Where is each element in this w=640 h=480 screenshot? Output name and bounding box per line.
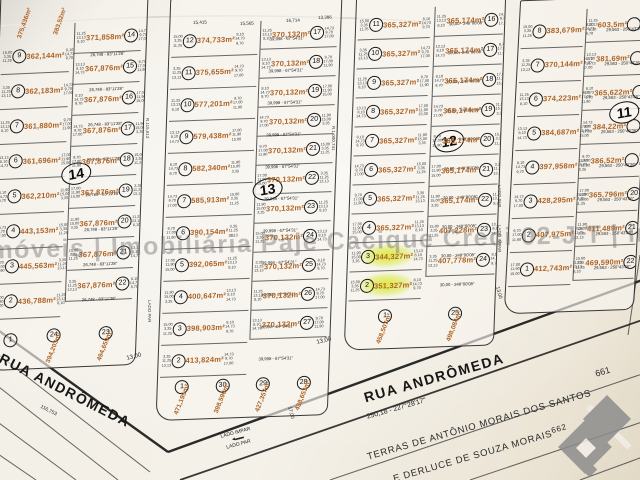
lot-column: 11,2513,138,10370,132m²1714,739,7017,003… bbox=[249, 18, 337, 340]
lot-number: 11 bbox=[369, 18, 384, 32]
lot-row: 13,138,1014,73370,132m²279,7017,0011,903… bbox=[250, 308, 327, 340]
edge-number: 8,10 bbox=[262, 37, 272, 42]
lot-number: 17 bbox=[483, 42, 498, 56]
edge-number: 8,10 bbox=[227, 265, 237, 270]
lot-row: 14,739,7017,00365,174m²1911,9015,003,353… bbox=[432, 94, 501, 126]
corridor-label-1: R.115,613 bbox=[145, 118, 150, 138]
edge-number: 13,13 bbox=[57, 266, 67, 271]
lot-number: 14 bbox=[124, 28, 139, 43]
lot-area: 365,796m² bbox=[589, 189, 628, 199]
lot-number: 17 bbox=[121, 121, 136, 136]
edge-numbers: 8,1014,739,70 bbox=[421, 17, 431, 30]
lot-number: 19 bbox=[308, 84, 323, 98]
edge-number: 3,35 bbox=[69, 226, 79, 231]
lot-area: 412,743m² bbox=[534, 263, 573, 273]
lot-area: 367,876m² bbox=[85, 62, 123, 73]
edge-number: 3,35 bbox=[417, 141, 427, 146]
edge-number: 9,70 bbox=[260, 95, 270, 100]
edge-numbers: 17,0011,9015,00 bbox=[231, 129, 241, 142]
lot-area: 365,174m² bbox=[443, 105, 481, 115]
bottom-lot: 1458,507m² bbox=[369, 308, 401, 332]
lot-number bbox=[626, 118, 640, 132]
lot-number: 16 bbox=[484, 12, 499, 26]
lot-number: 3 bbox=[172, 322, 187, 336]
top-dim-2: 15,565 bbox=[240, 21, 254, 26]
corridor-label-2: R.1.000,741 bbox=[331, 126, 336, 151]
edge-number: 3,35 bbox=[321, 121, 331, 126]
edge-numbers: 8,1014,739,70 bbox=[225, 321, 235, 334]
bottom-lot: 28438,653m² bbox=[287, 375, 319, 399]
lot-area: 367,876m² bbox=[77, 279, 115, 290]
lot-number: 10 bbox=[368, 47, 383, 61]
edge-numbers: 9,7017,0011,90 bbox=[62, 118, 72, 131]
edge-number: 3,35 bbox=[135, 130, 145, 135]
edge-number: 13,13 bbox=[319, 179, 329, 184]
lot-area: 370,132m² bbox=[268, 145, 306, 155]
block-bottom-lots: 1471,195m²30398,590m²29427,357m²28438,65… bbox=[161, 363, 325, 415]
lot-row: 17,0011,9015,001412,743m²11,2513,138,102… bbox=[508, 251, 572, 287]
lot-number: 8 bbox=[366, 105, 381, 119]
edge-numbers: 9,7017,0011,90 bbox=[71, 155, 81, 168]
edge-number: 14,73 bbox=[0, 164, 9, 169]
edge-number: 9,70 bbox=[235, 41, 245, 46]
block-14: 375,436m²383,52m²15,003,3511,259362,144m… bbox=[0, 0, 149, 371]
street-edge bbox=[0, 452, 36, 480]
lot-number: 5 bbox=[7, 189, 22, 204]
edge-number: 15,00 bbox=[510, 271, 520, 276]
lot-area: 362,183m² bbox=[25, 85, 63, 96]
edge-numbers: 8,1014,739,70 bbox=[260, 86, 270, 99]
lot-area: 351,327m² bbox=[374, 280, 412, 290]
edge-number: 3,35 bbox=[59, 196, 69, 201]
edge-numbers: 15,003,3511,25 bbox=[163, 323, 173, 336]
edge-number: 8,10 bbox=[76, 40, 86, 45]
edge-numbers: 9,7017,0011,90 bbox=[432, 135, 442, 148]
edge-number: 17,00 bbox=[315, 295, 325, 300]
bottom-lot: 25498,084m² bbox=[439, 306, 471, 330]
block-11: 15,003,3511,258383,679m²8,1014,739,7029,… bbox=[504, 0, 640, 314]
edge-number: 17,00 bbox=[498, 21, 506, 26]
edge-number: 17,00 bbox=[433, 113, 443, 118]
edge-number: 17,00 bbox=[63, 91, 73, 96]
edge-numbers: 11,2513,138,10 bbox=[253, 289, 263, 302]
edge-numbers: 13,138,1014,73 bbox=[261, 57, 271, 70]
lot-number: 10 bbox=[180, 98, 195, 112]
edge-numbers: 15,003,3511,25 bbox=[229, 193, 239, 206]
edge-number: 11,90 bbox=[314, 324, 324, 329]
lot-area: 367,876m² bbox=[82, 155, 120, 166]
lot-area: 577,201m² bbox=[194, 99, 232, 109]
lot-row: 13,138,1014,73367,876m²159,7017,0011,903… bbox=[73, 51, 140, 85]
edge-number: 13,13 bbox=[358, 56, 368, 61]
edge-number: 9,70 bbox=[434, 83, 444, 88]
edge-numbers: 8,1014,739,70 bbox=[168, 163, 178, 176]
edge-number: 14,73 bbox=[356, 114, 366, 119]
lot-number: 20 bbox=[480, 132, 495, 146]
edge-number: 14,73 bbox=[413, 257, 423, 262]
edge-numbers: 8,1014,739,70 bbox=[412, 278, 422, 291]
edge-numbers: 17,0011,9015,00 bbox=[136, 90, 146, 103]
lot-number: 18 bbox=[120, 152, 135, 167]
lot-row: 15,003,3511,259362,144m²8,1014,739,7026,… bbox=[1, 37, 70, 75]
edge-number: 15,00 bbox=[579, 133, 589, 138]
edge-numbers: 14,739,7017,00 bbox=[138, 28, 148, 41]
edge-number: 11,90 bbox=[62, 126, 72, 131]
edge-numbers: 11,2513,138,10 bbox=[76, 31, 86, 44]
lot-area: 384,687m² bbox=[541, 127, 580, 137]
edge-numbers: 8,1014,739,70 bbox=[64, 48, 74, 61]
edge-numbers: 3,3511,2513,13 bbox=[254, 260, 264, 273]
edge-numbers: 13,138,1014,73 bbox=[356, 106, 366, 119]
edge-numbers: 15,003,3511,25 bbox=[134, 152, 144, 165]
lot-row: 17,0011,9015,002436,788m²11,2513,138,102… bbox=[0, 282, 61, 320]
bottom-lot: 23494,659m² bbox=[89, 325, 121, 349]
edge-number: 9,70 bbox=[421, 25, 431, 30]
lot-number: 20 bbox=[117, 214, 132, 229]
edge-number: 9,70 bbox=[515, 169, 525, 174]
edge-numbers: 14,739,7017,00 bbox=[354, 164, 364, 177]
lot-number bbox=[629, 50, 640, 64]
lot-number: 7 bbox=[177, 194, 192, 208]
lot-number: 19 bbox=[118, 183, 133, 198]
lot-area: 582,340m² bbox=[192, 163, 230, 173]
edge-numbers: 13,138,1014,73 bbox=[226, 289, 236, 302]
edge-number: 11,25 bbox=[359, 27, 369, 32]
lot-number: 26 bbox=[301, 287, 316, 301]
lot-number: 4 bbox=[174, 290, 189, 304]
edge-number: 8,10 bbox=[253, 298, 263, 303]
edge-numbers: 14,739,7017,00 bbox=[513, 195, 524, 208]
edge-number: 9,70 bbox=[64, 56, 74, 61]
lot-row: 11,2513,138,10370,132m²1714,739,7017,003… bbox=[260, 18, 337, 50]
lot-dimension: 39,998 - 67°54'31" bbox=[258, 355, 293, 361]
edge-number: 11,90 bbox=[581, 99, 591, 104]
edge-number: 14,73 bbox=[517, 135, 527, 140]
edge-numbers: 9,7017,0011,90 bbox=[580, 155, 591, 168]
edge-number: 9,70 bbox=[584, 31, 594, 36]
edge-numbers: 11,2513,138,10 bbox=[318, 200, 328, 213]
lot-number: 19 bbox=[481, 102, 496, 116]
lot-number: 24 bbox=[476, 252, 491, 266]
edge-numbers: 17,0011,9015,00 bbox=[431, 165, 441, 178]
lot-area: 365,622m² bbox=[594, 87, 633, 97]
edge-numbers: 11,9015,003,35 bbox=[230, 161, 240, 174]
lot-number: 25 bbox=[302, 258, 317, 272]
lot-area: 375,655m² bbox=[196, 67, 234, 77]
lot-number: 3 bbox=[523, 194, 538, 208]
lot-area: 371,858m² bbox=[86, 31, 124, 42]
edge-number: 15,00 bbox=[70, 195, 80, 200]
top-dim-3: 16,714 bbox=[286, 18, 300, 23]
edge-number: 13,13 bbox=[254, 269, 264, 274]
edge-number: 8,10 bbox=[436, 23, 446, 28]
lot-number: 7 bbox=[365, 134, 380, 148]
edge-numbers: 8,1014,739,70 bbox=[129, 276, 139, 289]
lot-area: 362,210m² bbox=[21, 190, 59, 201]
lot-row: 17,0011,9015,00365,796m²203,3511,2513,13… bbox=[577, 177, 639, 213]
edge-numbers: 13,138,1014,73 bbox=[517, 127, 528, 140]
lot-area: 365,174m² bbox=[445, 45, 483, 55]
lot-number: 4 bbox=[525, 160, 540, 174]
edge-numbers: 11,2513,138,10 bbox=[519, 93, 530, 106]
edge-numbers: 14,739,7017,00 bbox=[582, 121, 593, 134]
edge-numbers: 15,003,3511,25 bbox=[522, 25, 533, 38]
lot-row: 13,138,1014,739579,438m²17,0011,9015,003… bbox=[168, 119, 255, 154]
edge-numbers: 14,739,7017,00 bbox=[259, 115, 269, 128]
edge-numbers: 9,7017,0011,90 bbox=[314, 316, 324, 329]
lot-row: 15,003,3511,258383,679m²8,1014,739,7029,… bbox=[521, 13, 585, 49]
lot-row: 8,1014,739,707365,327m²11,9015,003,3530,… bbox=[354, 125, 427, 157]
lot-row: 13,138,1014,73381,69m²9,7017,0011,9070°4… bbox=[584, 41, 640, 77]
edge-numbers: 11,9015,003,35 bbox=[417, 133, 427, 146]
block-bottom-lots: 1458,507m²25498,084m² bbox=[349, 294, 491, 345]
edge-number: 8,10 bbox=[318, 208, 328, 213]
lot-number: 5 bbox=[363, 192, 378, 206]
lot-row: 11,9015,003,35365,174m²2211,2513,138,103… bbox=[428, 184, 497, 216]
edge-number: 13,13 bbox=[161, 363, 171, 368]
lot-area: 370,132m² bbox=[263, 290, 301, 300]
edge-number: 15,00 bbox=[231, 137, 241, 142]
edge-number: 11,25 bbox=[2, 59, 12, 64]
edge-numbers: 14,739,7017,00 bbox=[433, 105, 443, 118]
edge-numbers: 17,0011,9015,00 bbox=[579, 189, 590, 202]
lot-area: 469,590m² bbox=[585, 257, 624, 267]
lot-row: 8,1014,739,705362,210m²11,9015,003,3526,… bbox=[0, 177, 65, 215]
edge-numbers: 8,1014,739,70 bbox=[355, 135, 365, 148]
edge-number: 17,00 bbox=[167, 203, 177, 208]
lot-number: 17 bbox=[310, 26, 325, 40]
edge-number: 11,25 bbox=[522, 33, 532, 38]
edge-numbers: 13,138,1014,73 bbox=[0, 155, 9, 168]
lot-number: 8 bbox=[178, 162, 193, 176]
edge-number: 11,90 bbox=[323, 63, 333, 68]
lot-area: 365,174m² bbox=[442, 135, 480, 145]
lot-row: 9,7017,0011,905365,327m²3,3511,2513,1330… bbox=[352, 183, 425, 215]
block-13: 15,003,3511,2512374,733m²8,1014,739,7039… bbox=[156, 0, 343, 421]
lot-area: 365,327m² bbox=[382, 48, 420, 58]
edge-numbers: 14,739,7017,00 bbox=[224, 353, 234, 366]
edge-number: 13,13 bbox=[133, 192, 143, 197]
lot-area: 362,144m² bbox=[26, 50, 64, 61]
lot-number: 21 bbox=[479, 162, 494, 176]
edge-numbers: 11,9015,003,35 bbox=[164, 291, 174, 304]
edge-numbers: 9,7017,0011,90 bbox=[137, 59, 147, 72]
lot-area: 381,69m² bbox=[596, 53, 630, 63]
edge-numbers: 15,003,3511,25 bbox=[350, 280, 360, 293]
lot-area: 407,778m² bbox=[438, 255, 476, 265]
lot-row: 15,003,3511,2512374,733m²8,1014,739,7039… bbox=[171, 23, 258, 58]
lot-dimension: 30,00 - 248°00'08" bbox=[440, 281, 475, 287]
lot-area: 370,132m² bbox=[271, 58, 309, 68]
lot-area-rotated: 383,52m² bbox=[52, 7, 68, 36]
edge-numbers: 3,3511,2513,13 bbox=[428, 255, 438, 268]
lot-area: 603,5m² bbox=[598, 19, 628, 29]
lot-area: 365,174m² bbox=[444, 75, 482, 85]
edge-numbers: 15,003,3511,25 bbox=[173, 35, 183, 48]
lot-row: 11,9015,003,354400,647m²13,138,1014,7339… bbox=[162, 279, 249, 314]
lot-area: 370,132m² bbox=[266, 203, 304, 213]
edge-numbers: 14,739,7017,00 bbox=[315, 287, 325, 300]
lot-area: 384,22m² bbox=[592, 121, 626, 131]
lot-row: 3,3511,2513,138362,183m²14,739,7017,0026… bbox=[0, 72, 69, 110]
edge-numbers: 8,1014,739,70 bbox=[316, 258, 326, 271]
lot-area: 428,295m² bbox=[537, 195, 576, 205]
edge-number: 11,90 bbox=[137, 68, 147, 73]
edge-number: 14,73 bbox=[261, 66, 271, 71]
edge-number: 8,10 bbox=[56, 301, 66, 306]
lot-number: 9 bbox=[367, 76, 382, 90]
lot-number: 20 bbox=[627, 186, 640, 200]
lot-number: 9 bbox=[12, 49, 27, 64]
edge-number: 11,90 bbox=[232, 105, 242, 110]
lot-row: 9,7017,0011,90365,174m²2015,003,3511,253… bbox=[431, 124, 500, 156]
edge-numbers: 15,003,3511,25 bbox=[416, 162, 426, 175]
lot-row: 8,1014,739,708582,340m²11,9015,003,3539,… bbox=[167, 151, 254, 186]
edge-number: 13,13 bbox=[1, 94, 11, 99]
edge-number: 9,70 bbox=[412, 286, 422, 291]
edge-number: 15,00 bbox=[431, 173, 441, 178]
lot-number bbox=[627, 16, 640, 30]
edge-numbers: 17,0011,9015,00 bbox=[418, 104, 428, 117]
edge-number: 3,35 bbox=[430, 203, 440, 208]
edge-number: 9,70 bbox=[316, 266, 326, 271]
lot-row: 3,3511,2513,137370,144m²14,739,7017,0029… bbox=[519, 47, 583, 83]
lot-area: 367,876m² bbox=[79, 217, 117, 228]
lot-area: 365,174m² bbox=[446, 15, 484, 25]
edge-number: 15,00 bbox=[0, 304, 4, 309]
edge-number: 8,10 bbox=[572, 269, 582, 274]
lot-dimension: 26,748 - 83°11'28" bbox=[82, 295, 116, 301]
lot-area: 370,132m² bbox=[262, 319, 300, 329]
edge-number: 15,00 bbox=[579, 197, 589, 202]
lot-row: 11,2513,138,1010577,201m²9,7017,0011,903… bbox=[169, 87, 256, 122]
edge-numbers: 14,739,7017,00 bbox=[63, 83, 73, 96]
edge-number: 11,90 bbox=[353, 201, 363, 206]
edge-numbers: 11,2513,138,10 bbox=[357, 77, 367, 90]
edge-number: 15,00 bbox=[165, 267, 175, 272]
edge-number: 17,00 bbox=[354, 172, 364, 177]
lot-area: 370,132m² bbox=[272, 29, 310, 39]
edge-numbers: 3,3511,2513,13 bbox=[133, 183, 143, 196]
edge-number: 14,73 bbox=[586, 61, 596, 66]
edge-number: 14,73 bbox=[435, 53, 445, 58]
lot-area: 443,153m² bbox=[20, 225, 58, 236]
edge-number: 11,90 bbox=[71, 164, 81, 169]
edge-number: 11,25 bbox=[134, 161, 144, 166]
edge-numbers: 3,3511,2513,13 bbox=[358, 48, 368, 61]
lot-area: 579,438m² bbox=[193, 131, 231, 141]
lot-area: 365,174m² bbox=[441, 165, 479, 175]
lot-row: 11,2513,138,10603,5m²14,739,7017,0070°43… bbox=[586, 7, 640, 43]
edge-numbers: 11,9015,003,35 bbox=[69, 217, 79, 230]
edge-numbers: 14,739,7017,00 bbox=[73, 124, 83, 137]
edge-number: 3,35 bbox=[351, 259, 361, 264]
edge-numbers: 13,138,1014,73 bbox=[169, 131, 179, 144]
lot-row: 8,1014,739,70365,174m²1817,0011,9015,003… bbox=[433, 64, 502, 96]
lot-area: 374,223m² bbox=[543, 93, 582, 103]
edge-numbers: 11,9015,003,35 bbox=[321, 113, 331, 126]
edge-number: 11,90 bbox=[0, 269, 5, 274]
edge-number: 8,10 bbox=[170, 107, 180, 112]
edge-numbers: 17,0011,9015,00 bbox=[510, 263, 521, 276]
lot-number: 18 bbox=[482, 72, 497, 86]
edge-number: 11,90 bbox=[258, 153, 268, 158]
lot-row: 13,138,1014,73365,174m²179,7017,0011,903… bbox=[434, 34, 503, 66]
lot-number: 2 bbox=[4, 294, 19, 309]
lot-area: 365,327m² bbox=[381, 77, 419, 87]
lot-row: 3,3511,2513,1310365,327m²14,739,7017,003… bbox=[357, 38, 430, 70]
edge-number: 14,73 bbox=[252, 327, 262, 332]
edge-number: 8,10 bbox=[0, 129, 10, 134]
edge-numbers: 9,7017,0011,90 bbox=[419, 75, 429, 88]
lot-row: 11,2513,138,10371,858m²1414,739,7017,003… bbox=[74, 20, 141, 54]
lot-number: 11 bbox=[181, 66, 196, 80]
edge-number: 11,25 bbox=[229, 201, 239, 206]
edge-numbers: 17,0011,9015,00 bbox=[61, 153, 71, 166]
lot-area: 374,733m² bbox=[197, 35, 235, 45]
edge-number: 13,13 bbox=[415, 199, 425, 204]
edge-number: 17,00 bbox=[73, 133, 83, 138]
edge-numbers: 14,739,7017,00 bbox=[324, 26, 334, 39]
edge-numbers: 9,7017,0011,90 bbox=[323, 55, 333, 68]
lot-row: 11,2513,138,106374,223m²9,7017,0011,9029… bbox=[517, 81, 581, 117]
lot-area: 413,824m² bbox=[185, 355, 223, 365]
lot-number: 18 bbox=[309, 55, 324, 69]
edge-numbers: 11,9015,003,35 bbox=[256, 202, 266, 215]
lot-number: 8 bbox=[532, 24, 547, 38]
bottom-lot: 1471,195m² bbox=[166, 379, 198, 403]
lot-area: 365,327m² bbox=[377, 193, 415, 203]
lot-number: 2 bbox=[171, 354, 186, 368]
edge-numbers: 17,0011,9015,00 bbox=[257, 173, 267, 186]
edge-number: 11,25 bbox=[173, 43, 183, 48]
lot-row: 13,138,1014,73370,132m²189,7017,0011,903… bbox=[259, 47, 336, 79]
lot-area: 397,958m² bbox=[539, 161, 578, 171]
edge-numbers: 11,2513,138,10 bbox=[262, 28, 272, 41]
lot-number: 22 bbox=[478, 192, 493, 206]
edge-number: 17,00 bbox=[324, 34, 334, 39]
edge-numbers: 3,3511,2513,13 bbox=[415, 191, 425, 204]
lot-area: 361,696m² bbox=[23, 155, 61, 166]
edge-numbers: 13,138,1014,73 bbox=[586, 53, 597, 66]
edge-number: 14,73 bbox=[226, 297, 236, 302]
lot-number: 8 bbox=[11, 84, 26, 99]
edge-number: 9,70 bbox=[225, 329, 235, 334]
lot-row: 11,2513,138,109365,327m²9,7017,0011,9030… bbox=[356, 67, 429, 99]
lot-number bbox=[632, 84, 640, 98]
edge-number: 11,25 bbox=[416, 170, 426, 175]
edge-number: 14,73 bbox=[169, 139, 179, 144]
lot-area: 370,132m² bbox=[267, 174, 305, 184]
edge-numbers: 15,003,3511,25 bbox=[2, 50, 12, 63]
top-dim-4: 13,386 bbox=[318, 15, 332, 20]
edge-numbers: 8,1014,739,70 bbox=[434, 75, 444, 88]
lot-row: 9,7017,0011,90386,52m²15,003,3511,2570°4… bbox=[579, 143, 640, 179]
edge-numbers: 3,3511,2513,13 bbox=[161, 355, 171, 368]
edge-number: 17,00 bbox=[138, 37, 148, 42]
edge-numbers: 8,1014,739,70 bbox=[515, 161, 526, 174]
edge-numbers: 14,739,7017,00 bbox=[420, 46, 430, 59]
lot-number: 7 bbox=[10, 119, 25, 134]
lot-row: 14,739,7017,007585,913m²15,003,3511,2539… bbox=[166, 183, 253, 218]
edge-numbers: 14,739,7017,00 bbox=[167, 195, 177, 208]
edge-number: 11,25 bbox=[320, 150, 330, 155]
edge-number: 17,00 bbox=[583, 65, 593, 70]
edge-numbers: 15,003,3511,25 bbox=[575, 257, 586, 270]
edge-number: 9,70 bbox=[0, 199, 7, 204]
edge-numbers: 9,7017,0011,90 bbox=[258, 144, 268, 157]
lot-row: 15,003,3511,25469,590m²2213,138,1014,737… bbox=[573, 245, 635, 281]
